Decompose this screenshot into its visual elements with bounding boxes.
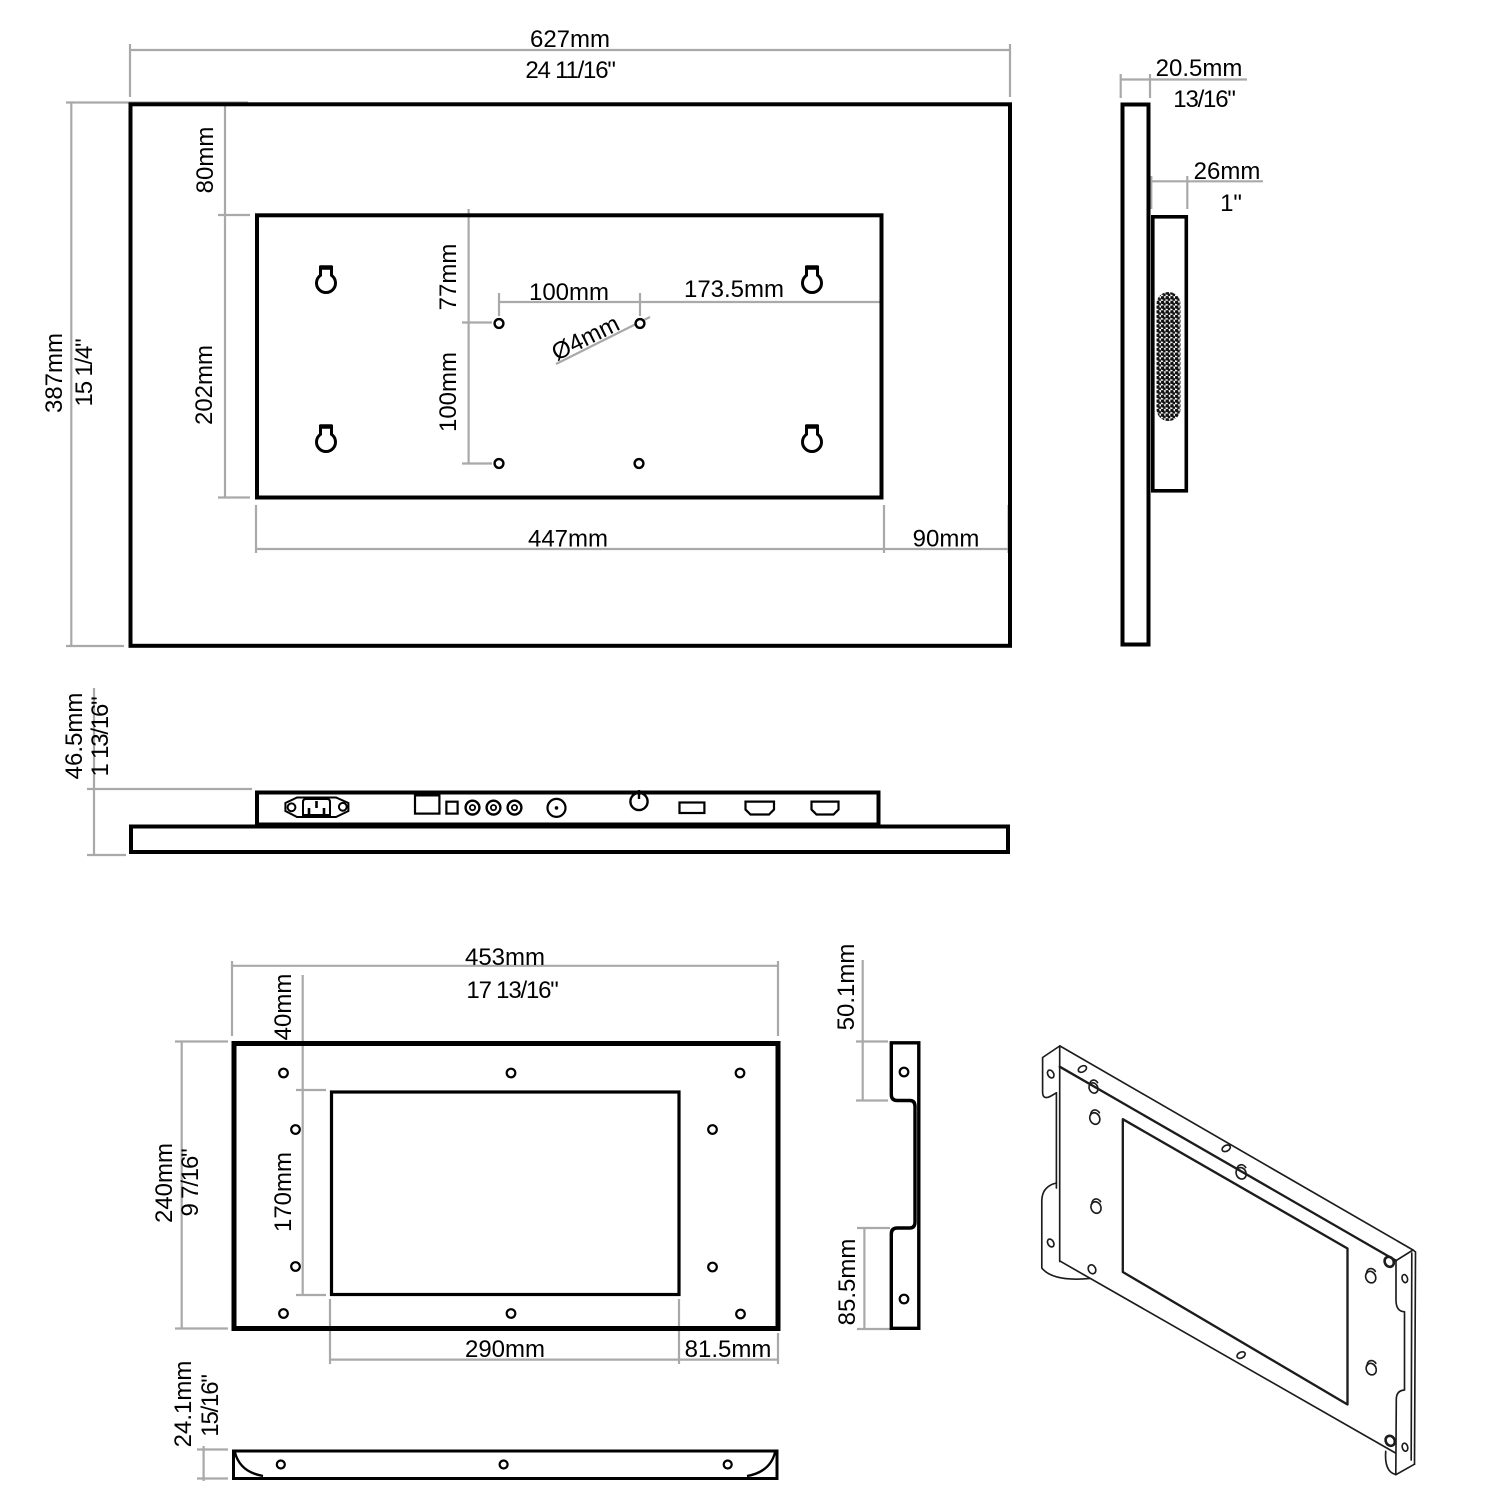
svg-text:26mm: 26mm [1194, 158, 1261, 185]
svg-text:447mm: 447mm [528, 526, 608, 553]
svg-text:290mm: 290mm [465, 1336, 545, 1363]
svg-text:627mm: 627mm [530, 26, 610, 53]
svg-text:24 11/16": 24 11/16" [525, 57, 615, 84]
svg-text:90mm: 90mm [913, 526, 980, 553]
svg-text:240mm: 240mm [151, 1143, 178, 1223]
svg-text:81.5mm: 81.5mm [685, 1336, 772, 1363]
svg-text:17 13/16": 17 13/16" [466, 977, 558, 1004]
svg-text:387mm: 387mm [41, 333, 68, 413]
svg-text:100mm: 100mm [529, 279, 609, 306]
svg-text:1 13/16": 1 13/16" [87, 697, 114, 777]
svg-text:15/16": 15/16" [197, 1375, 224, 1437]
svg-text:46.5mm: 46.5mm [61, 693, 88, 780]
svg-text:453mm: 453mm [465, 944, 545, 971]
svg-text:85.5mm: 85.5mm [834, 1239, 861, 1326]
svg-text:202mm: 202mm [191, 345, 218, 425]
svg-text:50.1mm: 50.1mm [833, 944, 860, 1031]
svg-text:24.1mm: 24.1mm [170, 1361, 197, 1448]
svg-text:20.5mm: 20.5mm [1156, 55, 1243, 82]
svg-text:Ø4mm: Ø4mm [547, 310, 623, 366]
svg-text:40mm: 40mm [270, 974, 297, 1041]
svg-text:13/16": 13/16" [1173, 86, 1235, 113]
svg-text:15 1/4": 15 1/4" [71, 339, 98, 407]
svg-text:170mm: 170mm [270, 1152, 297, 1232]
svg-text:173.5mm: 173.5mm [684, 276, 784, 303]
svg-text:1": 1" [1220, 190, 1242, 217]
svg-text:80mm: 80mm [192, 127, 219, 194]
svg-text:9 7/16": 9 7/16" [177, 1149, 204, 1217]
svg-text:100mm: 100mm [435, 352, 462, 432]
svg-text:77mm: 77mm [435, 244, 462, 311]
